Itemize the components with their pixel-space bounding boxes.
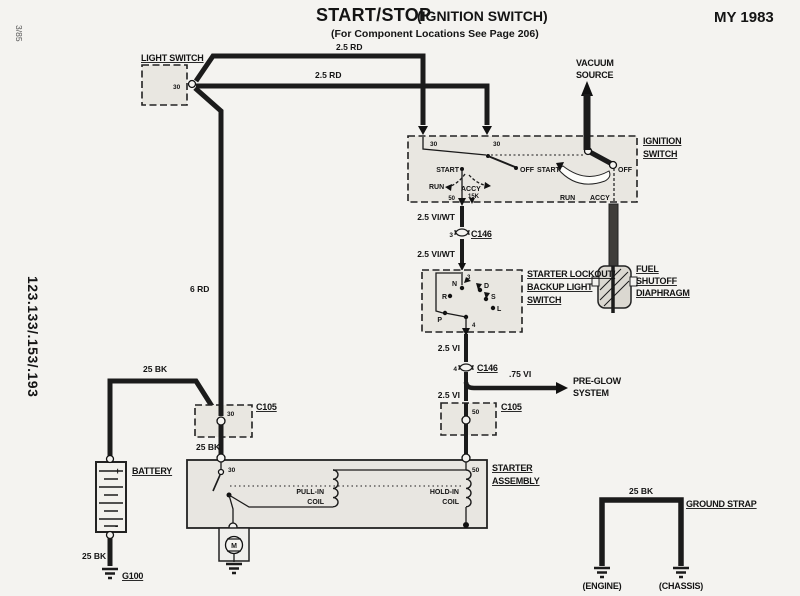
lockout-label-1: STARTER LOCKOUT/ <box>527 269 616 279</box>
holdin-label-1: HOLD-IN <box>430 489 459 496</box>
start-signal-run-upper: 2.5 VI/WT 2.5 VI/WT 3 C146 <box>417 206 492 271</box>
wire-label-6rd: 6 RD <box>190 284 209 294</box>
engine-ground-symbol <box>594 568 610 577</box>
vacuum-label-2: SOURCE <box>576 70 614 80</box>
lockout-pos-n: N <box>452 281 457 288</box>
chassis-ground-symbol <box>673 568 689 577</box>
preglow-branch: .75 VI PRE-GLOW SYSTEM <box>466 369 622 398</box>
c146-lower-name: C146 <box>477 363 498 373</box>
battery: + - BATTERY 25 BK G100 <box>82 456 172 582</box>
light-switch-terminal-30: 30 <box>173 84 181 91</box>
arrow-to-preglow <box>556 382 568 394</box>
ignition-pos-accy: ACCY <box>461 186 481 193</box>
fuel-label-1: FUEL <box>636 264 659 274</box>
c105-left-name: C105 <box>256 402 277 412</box>
starter-lockout-switch: STARTER LOCKOUT/ BACKUP LIGHT SWITCH 3 N… <box>422 269 616 336</box>
ignition-pos-off: OFF <box>520 167 535 174</box>
starter-terminal-30: 30 <box>228 467 236 474</box>
ignition-switch: IGNITION SWITCH 30 30 OFF START 50 RUN A… <box>408 136 681 206</box>
lockout-contact-r <box>448 294 452 298</box>
c146-lower-pin: 4 <box>453 366 457 373</box>
wire-preglow <box>466 382 556 388</box>
c105-right-name: C105 <box>501 402 522 412</box>
ignition-pos-run: RUN <box>429 184 444 191</box>
wire-label-bk-ground: 25 BK <box>82 551 107 561</box>
c105-right-pin: 50 <box>472 409 480 416</box>
ground-g100: G100 <box>102 569 143 581</box>
battery-label: BATTERY <box>132 466 172 476</box>
model-year: MY 1983 <box>714 9 774 26</box>
vacuum-label-1: VACUUM <box>576 58 614 68</box>
starter-terminal-50: 50 <box>472 467 480 474</box>
chassis-models: 123.133/.153/.193 <box>25 276 41 397</box>
lockout-pos-l: L <box>497 306 502 313</box>
connector-c146-lower: 4 C146 <box>453 363 498 373</box>
starter-terminal-30-circle <box>217 454 225 462</box>
ground-strap: 25 BK GROUND STRAP (ENGINE) (CHASSIS) <box>583 486 757 591</box>
starter-motor: M <box>219 528 249 573</box>
wire-label-viwt-upper: 2.5 VI/WT <box>417 212 456 222</box>
light-switch-connector-circle <box>189 81 196 88</box>
wire-label-rd-top: 2.5 RD <box>336 42 362 52</box>
mech-pos-start: START <box>537 167 561 174</box>
starter-label-1: STARTER <box>492 463 533 473</box>
wire-label-vi-lower: 2.5 VI <box>438 390 460 400</box>
ignition-pos-start: START <box>436 167 460 174</box>
wire-6-rd <box>195 88 221 403</box>
battery-box <box>96 462 126 532</box>
vacuum-arrow-up <box>581 81 593 96</box>
schematic-canvas: START/STOP (IGNITION SWITCH) (For Compon… <box>0 0 800 596</box>
header: START/STOP (IGNITION SWITCH) (For Compon… <box>14 5 774 397</box>
motor-m: M <box>231 543 237 550</box>
battery-negative-post <box>107 532 114 539</box>
starter-label-2: ASSEMBLY <box>492 476 540 486</box>
lockout-pos-d: D <box>484 283 489 290</box>
c105-right-circle <box>462 416 470 424</box>
light-switch-label: LIGHT SWITCH <box>141 53 204 63</box>
ground-strap-label: GROUND STRAP <box>686 499 757 509</box>
connector-c146-upper: 3 C146 <box>449 229 492 239</box>
c146-lower-symbol <box>459 364 473 371</box>
wire-label-bk-starter: 25 BK <box>196 442 221 452</box>
solenoid-contact-fixed <box>219 470 224 475</box>
wire-2-5-rd-top <box>196 56 423 125</box>
ignition-switch-label-2: SWITCH <box>643 149 677 159</box>
c146-upper-pin: 3 <box>449 232 453 239</box>
lockout-label-3: SWITCH <box>527 295 561 305</box>
locations-note: (For Component Locations See Page 206) <box>331 28 539 40</box>
start-signal-run-lower: 2.5 VI 4 C146 .75 VI PRE-GLOW SYSTEM 2.5… <box>438 334 622 454</box>
mech-pos-accy: ACCY <box>590 195 610 202</box>
wire-label-rd-mid: 2.5 RD <box>315 70 341 80</box>
ignition-off-contact <box>514 166 518 170</box>
wire-label-viwt-lower: 2.5 VI/WT <box>417 249 456 259</box>
wire-label-075vi: .75 VI <box>509 369 531 379</box>
wiring-diagram-page: START/STOP (IGNITION SWITCH) (For Compon… <box>0 0 800 596</box>
mech-pos-off: OFF <box>618 167 633 174</box>
page-title-sub: (IGNITION SWITCH) <box>417 8 548 24</box>
mech-pos-run: RUN <box>560 195 575 202</box>
arrow-into-ignition-30b <box>482 126 492 135</box>
holdin-label-2: COIL <box>442 499 459 506</box>
fuel-shutoff-hose <box>609 204 618 266</box>
g100-label: G100 <box>122 571 143 581</box>
edition-code: 3/85 <box>14 25 24 42</box>
lockout-label-2: BACKUP LIGHT <box>527 282 593 292</box>
wire-2-5-rd-mid <box>196 86 487 125</box>
connector-c105-right: 50 C105 <box>441 402 522 454</box>
pullin-label-2: COIL <box>307 499 324 506</box>
motor-ground-symbol <box>226 564 242 573</box>
starter-terminal-50-circle <box>462 454 470 462</box>
lockout-contact-l <box>491 306 495 310</box>
g100-ground-symbol <box>102 569 118 578</box>
page-title: START/STOP <box>316 5 431 25</box>
ignition-terminal-30b: 30 <box>493 141 501 148</box>
battery-minus: - <box>115 521 118 531</box>
c105-left-circle <box>217 417 225 425</box>
preglow-label-1: PRE-GLOW <box>573 376 622 386</box>
preglow-label-2: SYSTEM <box>573 388 609 398</box>
light-switch: LIGHT SWITCH 30 <box>141 53 204 105</box>
lever-joint-lower <box>610 162 617 169</box>
battery-feed: 25 BK 30 C105 25 BK <box>110 364 277 461</box>
ground-strap-wire <box>602 500 681 566</box>
lockout-contact-n <box>460 286 464 290</box>
engine-label: (ENGINE) <box>583 581 622 591</box>
fuel-label-2: SHUTOFF <box>636 276 678 286</box>
c105-left-pin: 30 <box>227 411 235 418</box>
ignition-switch-label-1: IGNITION <box>643 136 681 146</box>
battery-plus: + <box>115 466 120 476</box>
arrow-into-ignition-30a <box>418 126 428 135</box>
chassis-label: (CHASSIS) <box>659 581 703 591</box>
wire-label-vi-upper: 2.5 VI <box>438 343 460 353</box>
lockout-pos-s: S <box>491 294 496 301</box>
starter-assembly: 30 50 STARTER ASSEMBLY PULL-IN COIL HOLD… <box>187 454 540 573</box>
lockout-pos-r: R <box>442 294 447 301</box>
c146-upper-symbol <box>455 229 469 236</box>
fuel-label-3: DIAPHRAGM <box>636 288 690 298</box>
light-switch-box <box>142 65 187 105</box>
wire-label-bk-strap: 25 BK <box>629 486 654 496</box>
pullin-label-1: PULL-IN <box>296 489 324 496</box>
battery-positive-post <box>107 456 114 463</box>
holdin-case-ground <box>463 522 469 528</box>
ignition-terminal-30a: 30 <box>430 141 438 148</box>
lockout-pos-p: P <box>437 317 442 324</box>
c146-upper-name: C146 <box>471 229 492 239</box>
ignition-terminal-50: 50 <box>448 196 455 202</box>
fuel-shutoff-diaphragm: FUEL SHUTOFF DIAPHRAGM <box>592 204 690 313</box>
wire-label-bk-feed: 25 BK <box>143 364 168 374</box>
